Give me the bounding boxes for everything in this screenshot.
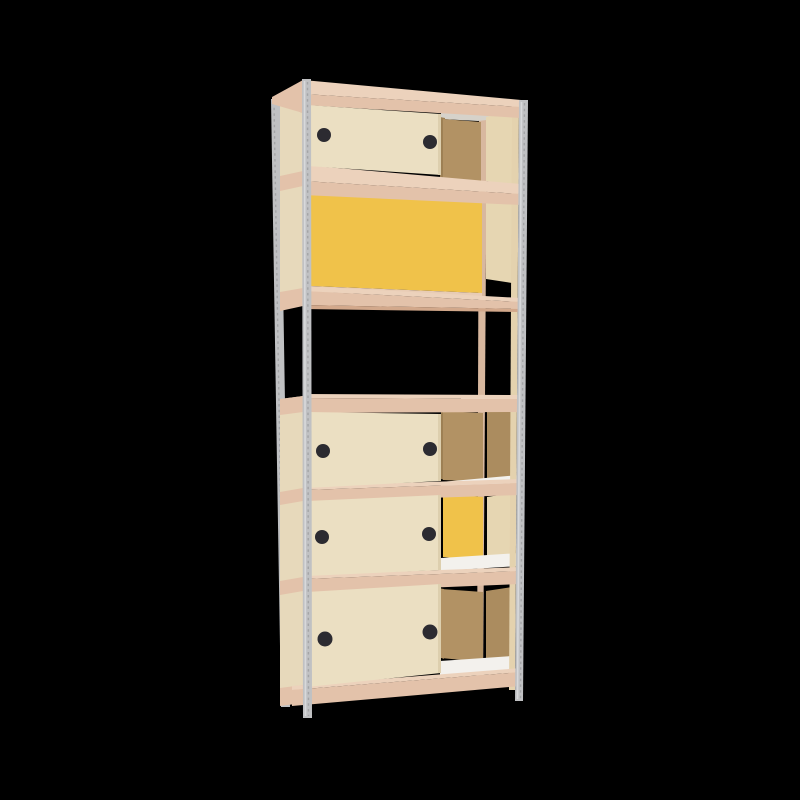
top-cabinet-rear-panel-brown <box>443 119 481 181</box>
yellow-cabinet-right-bay-panel <box>486 196 512 283</box>
bottom-cabinet-front-door-edge <box>438 584 441 673</box>
finger-hole-handle <box>318 632 333 647</box>
top-cabinet-front-door-edge <box>438 114 441 175</box>
bottom-cabinet-rear-panel-brown <box>441 589 483 662</box>
finger-hole-handle <box>316 444 330 458</box>
front-left-post-highlight <box>305 81 306 716</box>
yellow-mid-right-bay-panel <box>487 493 512 559</box>
finger-hole-handle <box>423 625 438 640</box>
left-side-panel-upper <box>280 104 303 297</box>
top-cabinet-right-bay-panel <box>486 110 512 186</box>
side-band-slab4 <box>280 396 303 415</box>
shelf-svg <box>0 0 800 800</box>
mid-cabinet-rear-panel-brown <box>443 411 483 482</box>
mid-cabinet-right-bay-panel-brown <box>487 408 512 480</box>
bottom-cabinet-right-bay-panel-brown <box>486 587 512 663</box>
finger-hole-handle <box>317 128 331 142</box>
mid-cabinet-front-door-edge <box>438 414 441 481</box>
shelf-illustration <box>0 0 800 800</box>
yellow-mid-front-door-edge <box>438 495 441 570</box>
finger-hole-handle <box>422 527 436 541</box>
finger-hole-handle <box>423 442 437 456</box>
yellow-sliding-door-small <box>443 494 483 560</box>
finger-hole-handle <box>315 530 329 544</box>
left-side-panel-lower <box>280 396 303 692</box>
slab4-front-face <box>303 398 521 413</box>
yellow-sliding-door-large <box>310 194 482 293</box>
finger-hole-handle <box>423 135 437 149</box>
